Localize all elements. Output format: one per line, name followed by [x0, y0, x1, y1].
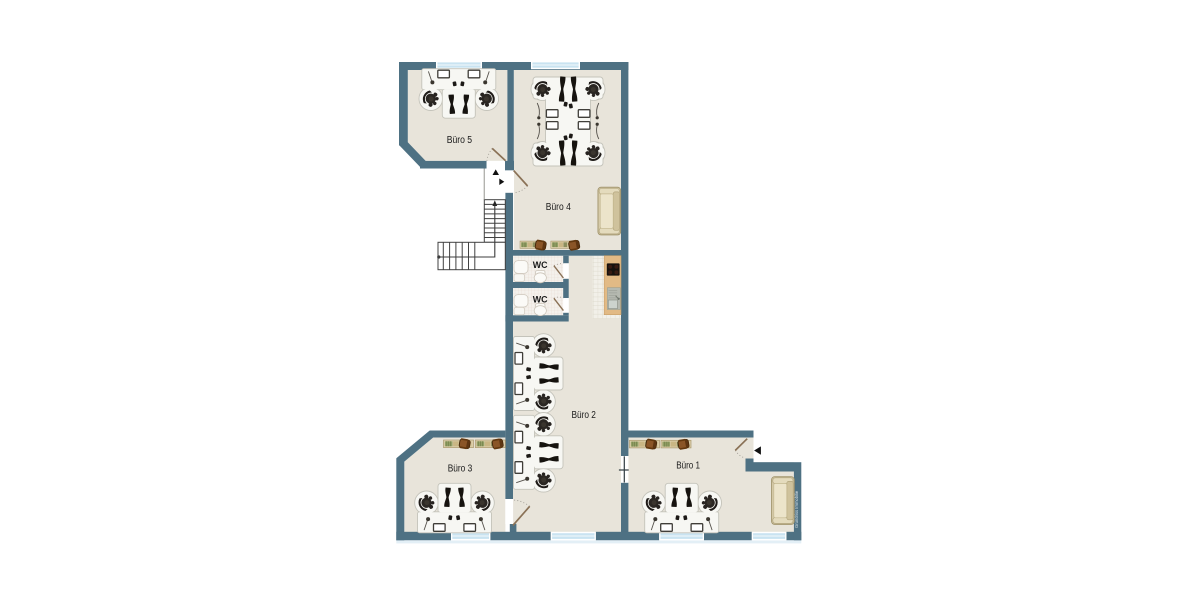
svg-text:Büro 5: Büro 5 [447, 135, 473, 146]
svg-text:Büro 2: Büro 2 [571, 410, 596, 421]
svg-text:WC: WC [533, 260, 548, 271]
svg-text:Grundriss Immobilie: Grundriss Immobilie [794, 490, 799, 528]
svg-text:WC: WC [533, 294, 548, 305]
svg-text:Büro 4: Büro 4 [546, 202, 571, 213]
svg-text:Büro 1: Büro 1 [676, 461, 700, 472]
svg-text:Büro 3: Büro 3 [448, 463, 473, 474]
